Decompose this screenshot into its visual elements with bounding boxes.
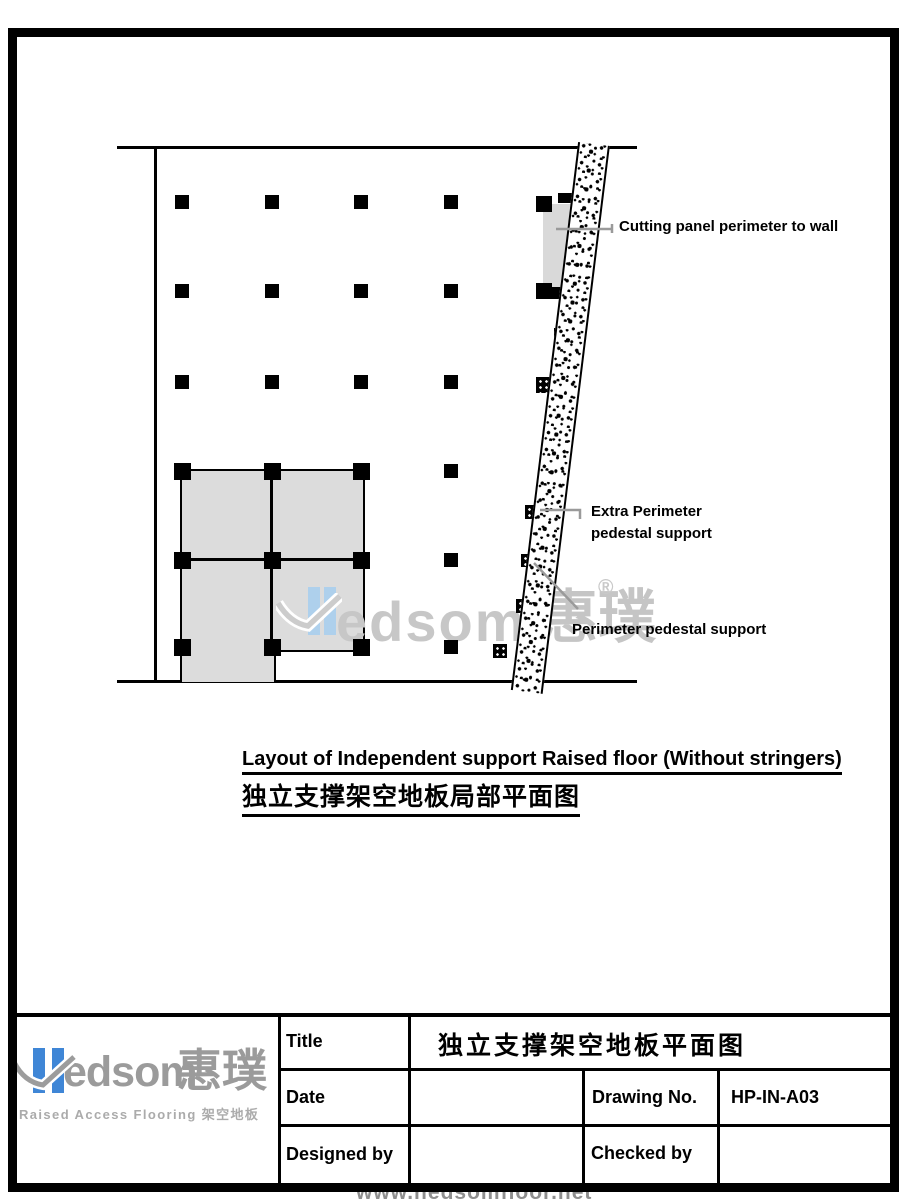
date-label: Date [286, 1087, 325, 1108]
perimeter-leader-line [534, 563, 578, 609]
drawing-no-label: Drawing No. [592, 1087, 697, 1108]
annotation-perimeter-pedestal: Perimeter pedestal support [572, 619, 766, 641]
logo-cn-text: 惠璞 [177, 1048, 267, 1093]
titleblock-col-line-mid [582, 1068, 585, 1183]
designed-by-label: Designed by [286, 1144, 393, 1165]
logo-swoosh-icon [12, 1054, 76, 1092]
titleblock-col-line-logo [278, 1013, 281, 1183]
drawing-no-value: HP-IN-A03 [731, 1087, 819, 1108]
title-label: Title [286, 1031, 323, 1052]
titleblock-col-line-value [717, 1068, 720, 1183]
checked-by-label: Checked by [591, 1143, 692, 1164]
annotation-extra-perimeter-line2: pedestal support [591, 523, 712, 545]
titleblock-top-line [8, 1013, 899, 1017]
annotation-extra-perimeter-line1: Extra Perimeter [591, 501, 712, 523]
titleblock-row-line-1 [278, 1068, 899, 1071]
cutting-leader-line [556, 224, 612, 233]
footer-watermark: www.hedsomfloor.net [356, 1181, 592, 1200]
drawing-caption-english: Layout of Independent support Raised flo… [242, 748, 842, 775]
annotation-extra-perimeter: Extra Perimeter pedestal support [591, 501, 712, 545]
annotation-cutting-panel: Cutting panel perimeter to wall [619, 216, 838, 238]
leader-lines [0, 0, 908, 1200]
extra-perimeter-leader-line [540, 510, 580, 519]
logo-subtitle: Raised Access Flooring 架空地板 [19, 1104, 259, 1123]
drawing-sheet: edsom 惠璞 ® Cutting panel perimeter to wa… [0, 0, 908, 1200]
drawing-caption-chinese: 独立支撑架空地板局部平面图 [242, 777, 580, 817]
titleblock-col-line-label [408, 1013, 411, 1183]
title-value: 独立支撑架空地板平面图 [438, 1026, 746, 1062]
titleblock-row-line-2 [278, 1124, 899, 1127]
